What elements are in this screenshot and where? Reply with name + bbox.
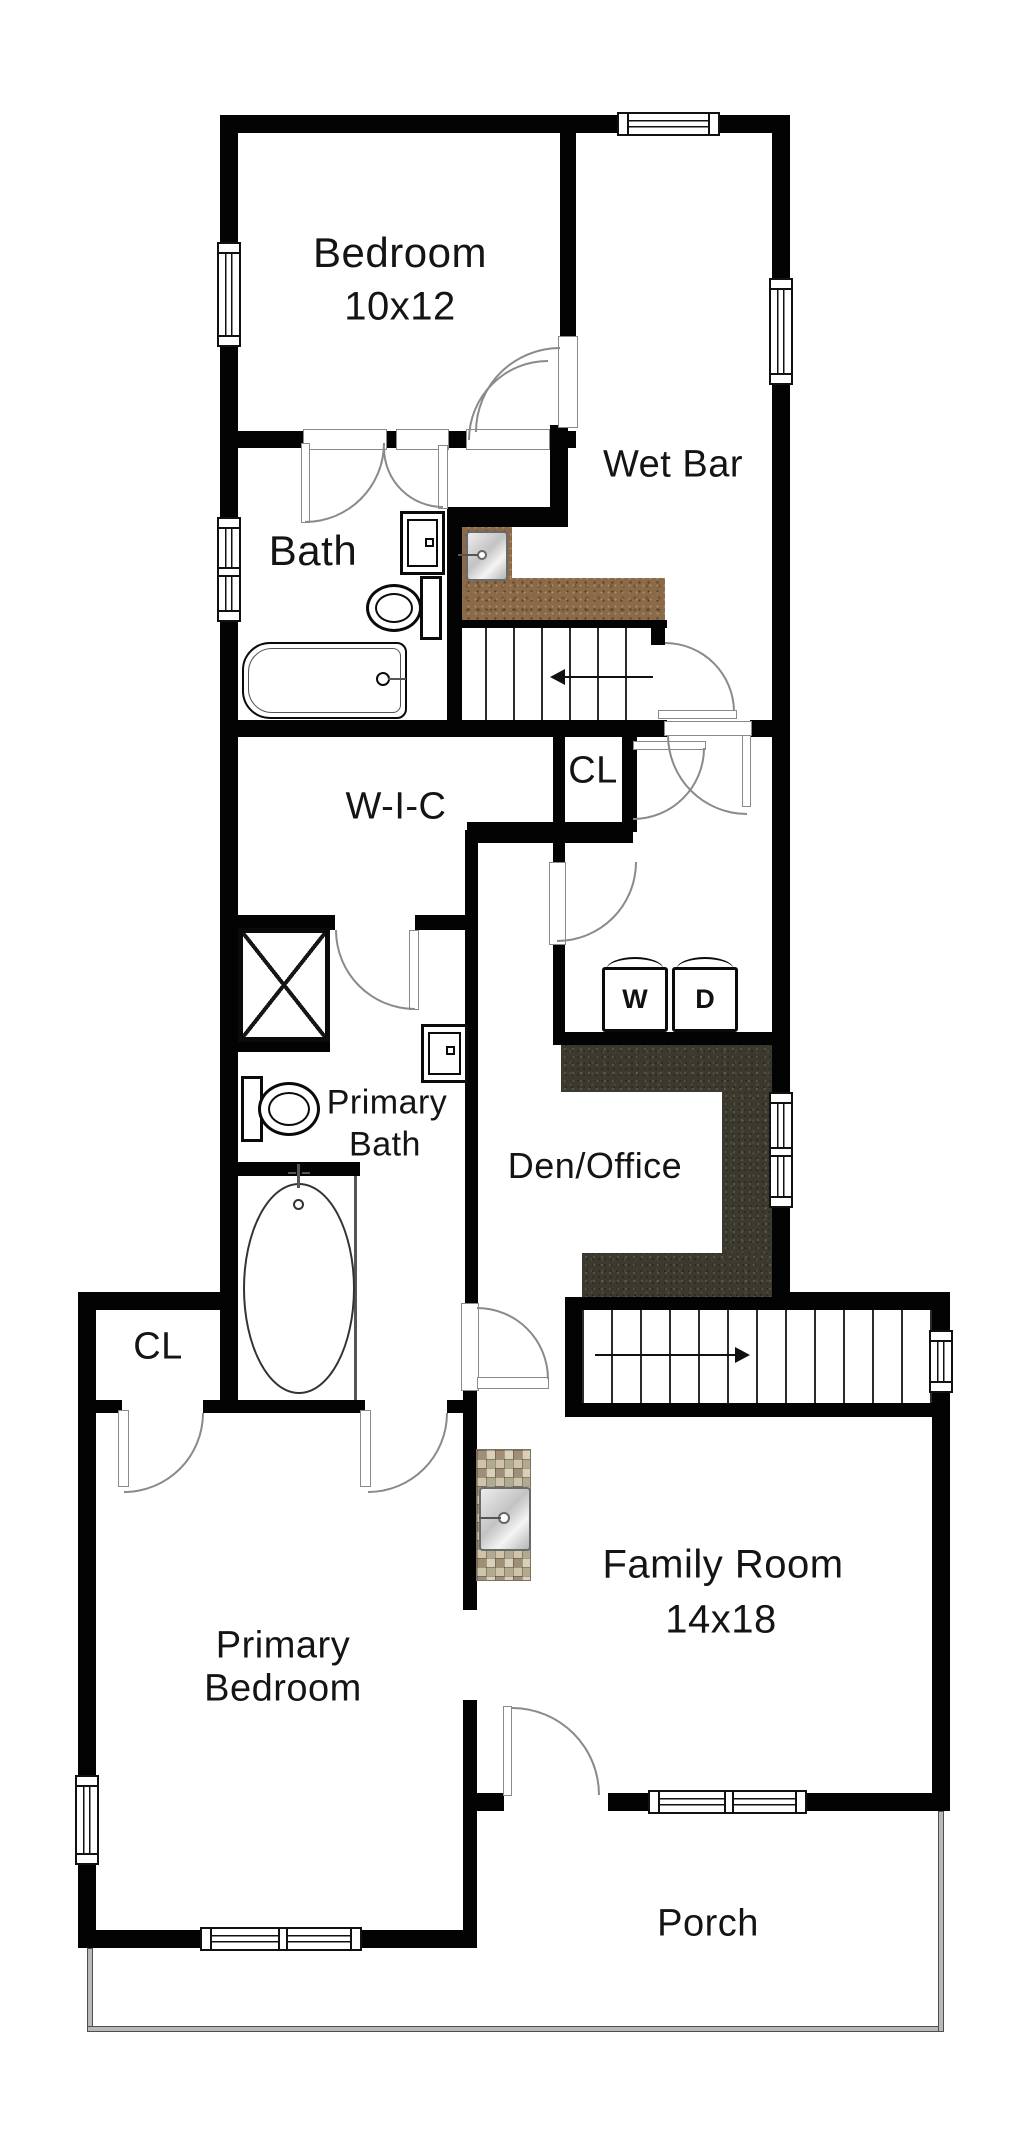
door-leaf (658, 710, 737, 719)
window (217, 242, 241, 347)
staircase-lower (582, 1310, 933, 1403)
shower (238, 928, 330, 1042)
door-swing-arc (665, 642, 735, 712)
window (217, 517, 241, 622)
room-label-bedroom: Bedroom (313, 229, 487, 277)
room-label-family-room: Family Room (602, 1543, 843, 1588)
wall-segment (203, 1400, 238, 1413)
window-mullion (724, 1790, 734, 1814)
door-leaf (503, 1706, 512, 1796)
washer: W (602, 967, 668, 1032)
window (648, 1790, 807, 1814)
wall-segment (807, 1793, 932, 1811)
door-swing-arc (512, 1707, 600, 1795)
sink-faucet (477, 550, 487, 560)
room-label-closet-bedroom: CL (133, 1326, 183, 1369)
dryer-label: D (695, 984, 715, 1015)
wall-segment (447, 431, 468, 448)
toilet-bowl-inner (375, 593, 413, 623)
window (769, 1092, 793, 1208)
primary-bath-vanity-inner (428, 1032, 461, 1075)
wall-segment (553, 843, 565, 862)
tub-filler-handle (288, 1172, 296, 1174)
room-label-den-office: Den/Office (508, 1145, 682, 1187)
window-mullion (769, 1147, 793, 1157)
wall-segment (447, 1400, 463, 1413)
room-label-porch: Porch (657, 1903, 759, 1946)
wall-segment (565, 1297, 933, 1310)
room-label-wet-bar: Wet Bar (603, 444, 743, 487)
stairs-down-arrow-icon (735, 1347, 750, 1363)
wall-segment (415, 915, 478, 930)
vanity-knob (425, 538, 434, 547)
wall-segment (560, 115, 576, 338)
door-swing-arc (557, 862, 637, 942)
toilet-tank (420, 576, 442, 640)
wall-segment (463, 1793, 504, 1811)
den-counter (582, 1253, 773, 1297)
wall-segment (548, 431, 576, 448)
sink-faucet-arm (479, 1517, 501, 1519)
wall-segment (651, 620, 665, 645)
door-swing-arc (475, 347, 560, 432)
wall-segment (750, 720, 790, 737)
door-swing-arc (368, 1413, 448, 1493)
room-label-wic: W-I-C (346, 786, 447, 829)
room-dims-bedroom: 10x12 (344, 285, 455, 330)
window (75, 1775, 99, 1865)
wall-segment (565, 1403, 933, 1417)
wall-segment (220, 431, 305, 448)
wall-segment (78, 1292, 238, 1310)
wall-segment (463, 1700, 477, 1948)
door-swing-arc (477, 1307, 549, 1379)
window (617, 112, 720, 136)
tub-faucet-arm (388, 678, 406, 680)
door-jamb (664, 721, 752, 736)
door-jamb (558, 336, 578, 428)
wet-bar-sink (466, 531, 508, 581)
stairs-up-arrow-icon (550, 669, 565, 685)
room-dims-family-room: 14x18 (665, 1598, 776, 1643)
wall-segment (553, 1032, 790, 1045)
wall-segment (467, 822, 633, 843)
tub-filler (297, 1164, 300, 1188)
den-counter (722, 1092, 773, 1253)
door-swing-arc (305, 443, 385, 523)
room-label-primary-bedroom-1: Primary (216, 1625, 350, 1668)
wall-segment (608, 1793, 648, 1811)
washer-label: W (622, 984, 647, 1015)
dryer: D (672, 967, 738, 1032)
oval-bathtub (243, 1183, 355, 1394)
den-counter (561, 1045, 773, 1092)
stairs-direction-line (565, 676, 653, 678)
door-swing-arc (335, 930, 415, 1010)
wall-segment (238, 1400, 365, 1413)
wall-segment (553, 735, 565, 832)
room-label-closet-hall: CL (568, 750, 618, 793)
tub-drain (293, 1199, 304, 1210)
wall-segment (463, 1388, 477, 1610)
wall-segment (565, 1297, 582, 1417)
window (769, 278, 793, 385)
porch-wall (938, 1811, 944, 2032)
toilet-bowl-inner (268, 1092, 310, 1126)
wall-segment (220, 720, 667, 737)
window (929, 1330, 953, 1393)
stairs-direction-line (595, 1354, 735, 1356)
wall-segment (450, 620, 667, 628)
room-label-bath: Bath (269, 527, 357, 575)
porch-wall (87, 2026, 944, 2032)
room-label-primary-bath-1: Primary (327, 1084, 448, 1123)
window-mullion (278, 1927, 288, 1951)
porch-wall (87, 1948, 93, 2032)
wall-segment (447, 507, 568, 527)
room-label-primary-bedroom-2: Bedroom (204, 1668, 362, 1711)
room-label-primary-bath-2: Bath (349, 1126, 421, 1165)
window-mullion (217, 567, 241, 577)
door-swing-arc (124, 1413, 204, 1493)
door-swing-arc (383, 448, 443, 508)
vanity-knob (446, 1046, 455, 1055)
window (200, 1927, 362, 1951)
tub-filler-handle (302, 1172, 310, 1174)
sink-faucet-arm (458, 554, 478, 556)
wall-segment (553, 945, 565, 1035)
floor-plan: W D Bedroom 10x12 Wet Bar Bath CL W-I-C … (0, 0, 1030, 2148)
